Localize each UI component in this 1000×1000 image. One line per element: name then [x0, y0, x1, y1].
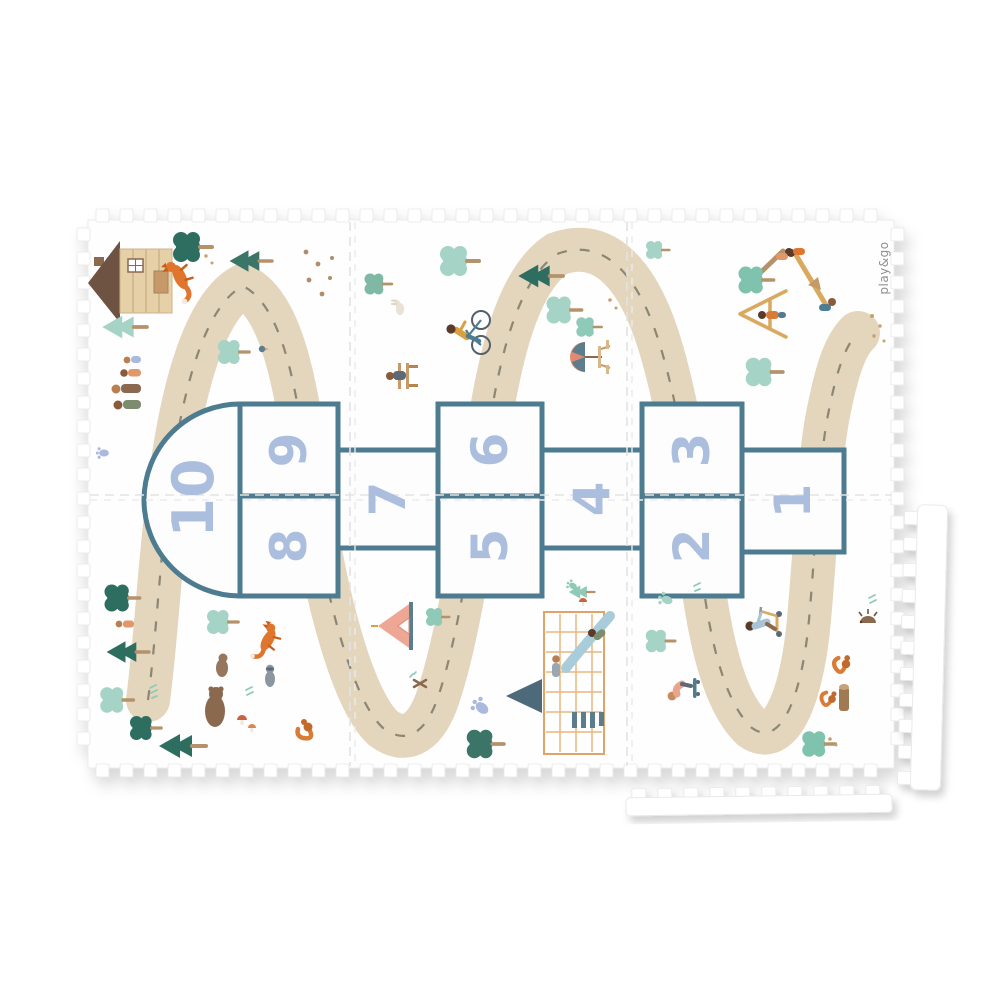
hopscotch-number-6: 6	[461, 433, 519, 468]
loose-edge-strip-horizontal	[626, 785, 892, 816]
hopscotch-number-9: 9	[260, 433, 318, 468]
hopscotch-number-8: 8	[260, 529, 318, 564]
hopscotch-number-10: 10	[161, 458, 227, 537]
playmat: 10 9 8 7 6 5 4 3 2 1 play&go	[77, 209, 904, 777]
raccoon-icon	[265, 665, 275, 687]
brand-logo: play&go	[877, 241, 891, 294]
hopscotch-number-2: 2	[663, 529, 721, 564]
hopscotch-number-5: 5	[461, 529, 519, 564]
hopscotch-number-3: 3	[663, 433, 721, 468]
hopscotch-number-1: 1	[764, 484, 822, 519]
loose-edge-strip-vertical	[897, 504, 947, 790]
product-photo: 10 9 8 7 6 5 4 3 2 1 play&go	[0, 0, 1000, 1000]
hopscotch-number-4: 4	[563, 482, 621, 517]
small-kid-icon	[116, 621, 134, 628]
playmat-product-image: 10 9 8 7 6 5 4 3 2 1 play&go	[0, 0, 1000, 1000]
hopscotch-number-7: 7	[359, 482, 417, 517]
